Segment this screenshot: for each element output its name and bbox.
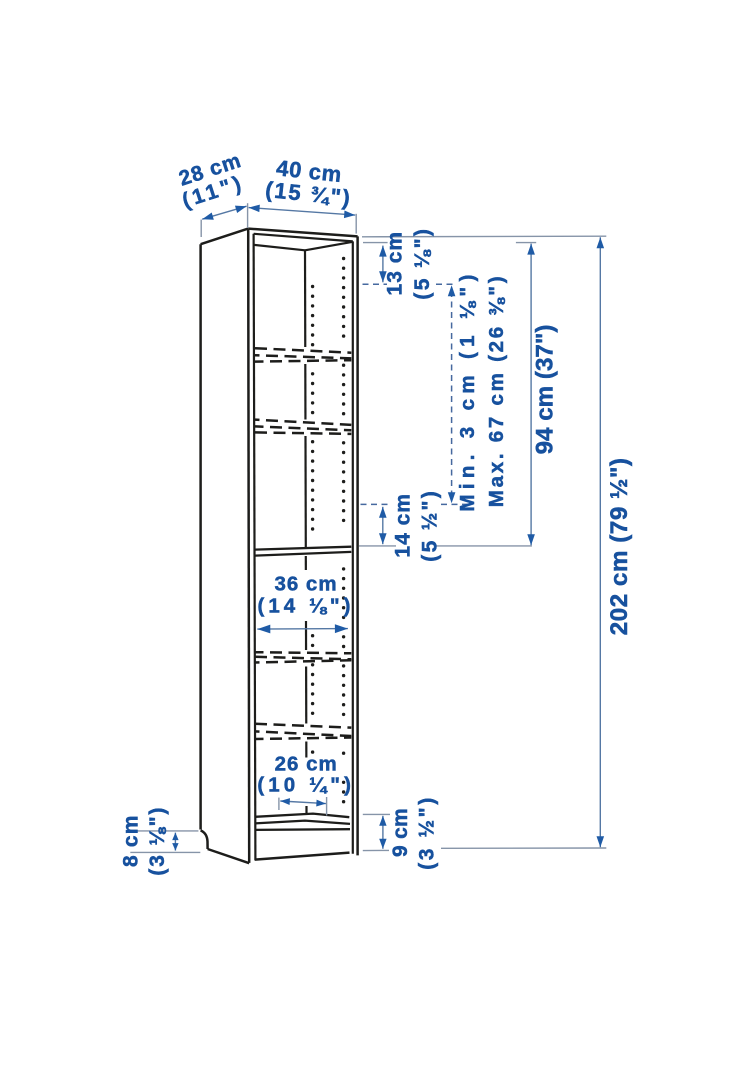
svg-text:94 cm (37"): 94 cm (37") [532, 325, 559, 455]
svg-text:13 cm: 13 cm [384, 231, 407, 296]
svg-text:36 cm: 36 cm [274, 572, 337, 595]
svg-text:(3 ⅛"): (3 ⅛") [146, 806, 169, 876]
svg-text:26 cm: 26 cm [275, 752, 338, 775]
svg-text:202 cm (79 ½"): 202 cm (79 ½") [606, 458, 633, 636]
svg-text:(5 ⅛"): (5 ⅛") [411, 227, 434, 300]
svg-text:(10 ¼"): (10 ¼") [257, 774, 355, 797]
svg-text:9 cm: 9 cm [389, 808, 412, 857]
svg-text:8 cm: 8 cm [120, 814, 143, 867]
svg-text:(14 ⅛"): (14 ⅛") [258, 594, 355, 617]
svg-text:Max. 67 cm (26 ⅜"): Max. 67 cm (26 ⅜") [485, 274, 508, 508]
svg-text:Min. 3 cm (1 ⅛"): Min. 3 cm (1 ⅛") [456, 269, 479, 511]
svg-text:(5 ½"): (5 ½") [419, 489, 442, 562]
svg-text:14 cm: 14 cm [392, 493, 415, 558]
svg-text:(3 ½"): (3 ½") [416, 795, 439, 870]
